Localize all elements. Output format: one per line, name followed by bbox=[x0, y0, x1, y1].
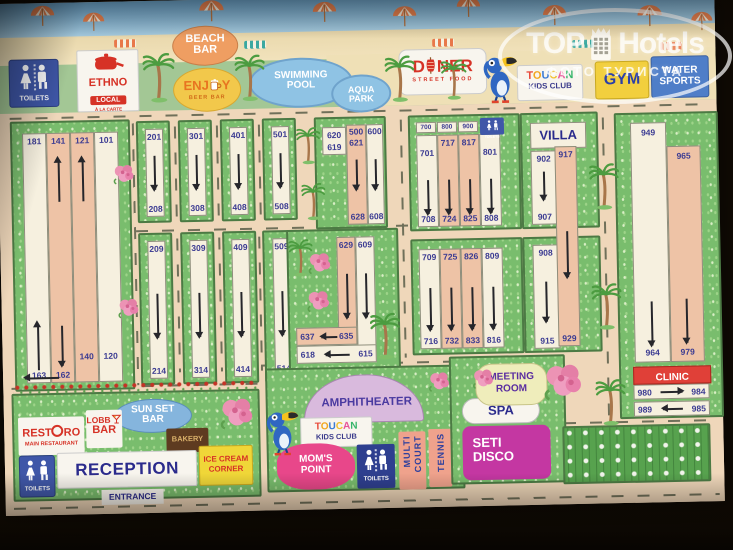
room-number: 635 bbox=[339, 331, 353, 341]
room-number: 609 bbox=[356, 239, 373, 249]
room-number: 817 bbox=[459, 137, 478, 147]
resort-map-photo: TOILETS ETHNO LOCAL À LA CARTE BEACH BAR… bbox=[0, 0, 733, 550]
room-number: 401 bbox=[230, 130, 246, 140]
left-arrow-icon bbox=[326, 354, 350, 357]
toilets-north: TOILETS bbox=[8, 59, 59, 108]
beach-lounger bbox=[114, 39, 136, 47]
down-arrow-icon bbox=[450, 288, 453, 330]
room-number: 915 bbox=[535, 335, 559, 346]
room-number: 964 bbox=[636, 347, 670, 358]
room-number: 825 bbox=[461, 213, 480, 223]
building-block-100s: 181 163 141 162 121 140 101 120 bbox=[10, 119, 136, 391]
toilets-reception: TOILETS bbox=[19, 455, 56, 498]
beach-lounger bbox=[432, 39, 454, 47]
reception-label: RECEPTION bbox=[58, 451, 197, 488]
room-number: 709 bbox=[420, 252, 439, 262]
tophotels-watermark: TOP Hotels ФОТО ТУРИСТА bbox=[498, 8, 732, 104]
room-number: 414 bbox=[235, 364, 251, 374]
enjoy-label-part1: ENJ bbox=[183, 78, 209, 94]
room-number: 208 bbox=[147, 204, 163, 214]
down-arrow-icon bbox=[427, 180, 430, 214]
down-arrow-icon bbox=[448, 180, 451, 214]
room-number: 701 bbox=[417, 148, 436, 158]
room-number: 140 bbox=[76, 351, 98, 361]
room-number: 619 bbox=[323, 142, 345, 152]
room-number: 209 bbox=[148, 244, 164, 254]
room-number: 907 bbox=[533, 211, 557, 222]
toilets-mini-label: TOILETS bbox=[480, 135, 504, 139]
reception-block: SUN SET BAR RESTRO MAIN RESTAURANT LOBB … bbox=[11, 389, 261, 502]
toilets-label: TOILETS bbox=[357, 476, 395, 483]
room-number: 979 bbox=[672, 346, 704, 357]
villa-strip-917: 917 929 bbox=[554, 146, 580, 346]
room-number: 816 bbox=[484, 335, 503, 345]
moms-point: MOM'S POINT bbox=[277, 443, 356, 491]
toucan-sub: KIDS CLUB bbox=[301, 431, 371, 441]
block-header-900: 900 bbox=[458, 121, 478, 132]
room-number: 801 bbox=[480, 147, 499, 157]
building-block-301: 301 308 bbox=[178, 120, 214, 223]
room-number: 409 bbox=[232, 242, 248, 252]
restoro-restaurant: RESTRO MAIN RESTAURANT bbox=[18, 416, 85, 455]
room-number: 989 bbox=[638, 404, 652, 414]
down-arrow-icon bbox=[543, 172, 546, 200]
room-number: 615 bbox=[358, 348, 372, 358]
tennis-label: TENNIS bbox=[435, 433, 446, 472]
seti-disco: SETI DISCO bbox=[462, 425, 551, 481]
room-number: 732 bbox=[442, 335, 461, 345]
room-number: 949 bbox=[631, 127, 665, 138]
watermark-word-hotels: Hotels bbox=[618, 27, 704, 61]
restoro-part1: REST bbox=[22, 427, 52, 440]
moms-point-label2: POINT bbox=[277, 464, 355, 477]
building-block-900s: 949 964 965 979 CLINIC 980 984 989 985 bbox=[614, 111, 724, 419]
room-number: 608 bbox=[369, 211, 384, 221]
toilets-label: TOILETS bbox=[10, 95, 58, 103]
restoro-part2: RO bbox=[64, 426, 81, 438]
building-block-409: 409 414 bbox=[222, 231, 259, 384]
room-number: 314 bbox=[193, 365, 209, 375]
down-arrow-icon bbox=[651, 301, 654, 345]
room-number: 120 bbox=[100, 351, 122, 361]
room-number: 214 bbox=[151, 366, 167, 376]
building-block-201: 201 208 bbox=[136, 120, 172, 223]
garden-box bbox=[562, 423, 711, 484]
plate-icon bbox=[52, 425, 64, 437]
room-number: 301 bbox=[188, 131, 204, 141]
toilets-icon bbox=[22, 459, 52, 482]
room-number: 620 bbox=[323, 130, 345, 140]
room-number: 716 bbox=[421, 336, 440, 346]
building-block-700n: 700 800 900 TOILETS 701 708 717 724 817 … bbox=[408, 113, 522, 231]
block-header-800: 800 bbox=[437, 121, 457, 132]
room-number: 309 bbox=[190, 243, 206, 253]
up-arrow-icon bbox=[58, 162, 61, 202]
restoro-sub: MAIN RESTAURANT bbox=[18, 440, 84, 447]
amphitheater-block: AMPHITHEATER TOUCAN KIDS CLUB MOM'S POIN… bbox=[265, 364, 466, 492]
room-number: 308 bbox=[189, 203, 205, 213]
building-block-209: 209 214 bbox=[138, 232, 175, 385]
watermark-subtitle: ФОТО ТУРИСТА bbox=[502, 64, 728, 79]
entrance: ENTRANCE bbox=[101, 489, 163, 505]
down-arrow-icon bbox=[198, 293, 201, 337]
room-number: 508 bbox=[273, 201, 289, 211]
room-number: 984 bbox=[691, 386, 705, 396]
left-arrow-icon bbox=[663, 408, 683, 410]
toilets-divider bbox=[375, 449, 377, 471]
room-number: 708 bbox=[419, 214, 438, 224]
multi-court-label: MULTI bbox=[401, 435, 412, 467]
down-arrow-icon bbox=[566, 231, 569, 277]
doner-sub: STREET FOOD bbox=[400, 76, 486, 84]
down-arrow-icon bbox=[279, 153, 282, 187]
down-arrow-icon bbox=[195, 155, 198, 189]
sunset-bar-label2: BAR bbox=[115, 414, 191, 426]
multi-court: MULTI COURT bbox=[398, 431, 426, 490]
room-number: 833 bbox=[463, 335, 482, 345]
down-arrow-icon bbox=[490, 179, 493, 213]
toilets-label: TOILETS bbox=[20, 486, 54, 493]
room-number: 717 bbox=[438, 137, 457, 147]
room-number: 121 bbox=[71, 135, 93, 145]
room-number: 637 bbox=[300, 332, 314, 342]
room-number: 985 bbox=[692, 403, 706, 413]
ethno-restaurant: ETHNO LOCAL À LA CARTE bbox=[76, 49, 139, 112]
down-arrow-icon bbox=[153, 156, 156, 190]
building-block-401: 401 408 bbox=[220, 119, 256, 222]
room-number: 201 bbox=[146, 132, 162, 142]
down-arrow-icon bbox=[237, 154, 240, 188]
up-arrow-icon bbox=[82, 161, 85, 201]
ice-cream-label2: CORNER bbox=[200, 464, 252, 475]
ice-cream-corner: ICE CREAM CORNER bbox=[199, 445, 254, 486]
room-number: 500 bbox=[347, 126, 365, 136]
block-header-700: 700 bbox=[416, 122, 436, 133]
hotel-building-icon bbox=[585, 26, 617, 62]
down-arrow-icon bbox=[281, 291, 284, 335]
meeting-room-label2: ROOM bbox=[476, 383, 546, 396]
doner-kebab-icon bbox=[425, 56, 437, 75]
beach-lounger bbox=[244, 40, 266, 48]
room-number: 902 bbox=[532, 153, 556, 164]
doner-street-food: DNER STREET FOOD bbox=[398, 48, 487, 96]
beer-mug-icon bbox=[209, 78, 222, 91]
right-arrow-icon bbox=[661, 391, 683, 393]
left-arrow-icon bbox=[321, 336, 337, 338]
down-arrow-icon bbox=[156, 294, 159, 338]
room-number: 629 bbox=[337, 240, 354, 250]
room-number: 908 bbox=[534, 247, 558, 258]
building-block-501: 501 508 bbox=[262, 118, 298, 221]
room-number: 965 bbox=[668, 150, 700, 161]
tennis-court: TENNIS bbox=[428, 429, 452, 487]
down-arrow-icon bbox=[346, 274, 349, 318]
ice-cream-label: ICE CREAM bbox=[200, 454, 252, 465]
up-arrow-icon bbox=[37, 326, 40, 370]
room-number: 917 bbox=[555, 149, 575, 159]
beach-bar-label2: BAR bbox=[173, 44, 237, 56]
down-arrow-icon bbox=[471, 287, 474, 329]
villa-title: VILLA bbox=[531, 123, 585, 148]
clinic-label: CLINIC bbox=[655, 372, 689, 384]
room-number: 628 bbox=[349, 211, 367, 221]
down-arrow-icon bbox=[545, 282, 548, 322]
cooking-pot-icon bbox=[90, 52, 124, 73]
room-number: 929 bbox=[559, 333, 579, 343]
down-arrow-icon bbox=[429, 288, 432, 330]
room-number: 725 bbox=[441, 251, 460, 261]
doner-label-part1: D bbox=[412, 57, 425, 76]
down-arrow-icon bbox=[61, 326, 64, 366]
entrance-label: ENTRANCE bbox=[101, 489, 163, 504]
building-block-600s: 629 609 637 635 618 615 bbox=[286, 228, 401, 372]
building-block-600n: 620 619 500 621 628 600 608 bbox=[314, 116, 388, 229]
reception-desk: RECEPTION bbox=[57, 450, 198, 489]
doner-label-part2: NER bbox=[437, 56, 473, 76]
room-number: 181 bbox=[23, 136, 45, 146]
ethno-title: ETHNO bbox=[78, 77, 138, 89]
down-arrow-icon bbox=[374, 159, 377, 189]
room-number: 809 bbox=[483, 251, 502, 261]
room-number: 724 bbox=[440, 213, 459, 223]
room-number: 808 bbox=[482, 213, 501, 223]
toilets-icon bbox=[483, 120, 500, 131]
toilets-mini: TOILETS bbox=[480, 117, 504, 134]
aqua-label2: PARK bbox=[333, 94, 389, 104]
lobby-part2: BAR bbox=[86, 425, 122, 437]
building-block-700s: 709 716 725 732 826 833 809 816 bbox=[410, 237, 524, 355]
amphitheater-label: AMPHITHEATER bbox=[282, 395, 452, 411]
ethno-sub: LOCAL bbox=[90, 95, 126, 105]
room-number: 621 bbox=[347, 137, 365, 147]
room-number: 600 bbox=[367, 126, 382, 136]
down-arrow-icon bbox=[364, 273, 367, 317]
watermark-word-top: TOP bbox=[526, 27, 584, 61]
down-arrow-icon bbox=[492, 287, 495, 329]
down-arrow-icon bbox=[356, 160, 359, 190]
down-arrow-icon bbox=[686, 299, 689, 343]
room-number: 618 bbox=[301, 349, 315, 359]
room-number: 826 bbox=[462, 251, 481, 261]
room-number: 980 bbox=[637, 387, 651, 397]
building-block-309: 309 314 bbox=[180, 232, 217, 385]
down-arrow-icon bbox=[240, 292, 243, 336]
room-number: 141 bbox=[47, 136, 69, 146]
disco-label2: DISCO bbox=[473, 449, 551, 465]
spa-block: MEETING ROOM SPA SETI DISCO bbox=[449, 354, 568, 484]
room-number: 501 bbox=[272, 129, 288, 139]
room-number: 408 bbox=[231, 202, 247, 212]
meeting-room: MEETING ROOM bbox=[475, 363, 548, 406]
multi-court-label2: COURT bbox=[412, 435, 423, 472]
lobby-bar: LOBB BAR bbox=[86, 410, 123, 449]
room-number: 101 bbox=[95, 135, 117, 145]
enjoy-label-part2: Y bbox=[222, 77, 231, 92]
clinic-banner: CLINIC bbox=[633, 365, 711, 385]
toilets-south: TOILETS bbox=[357, 444, 396, 489]
down-arrow-icon bbox=[469, 179, 472, 213]
